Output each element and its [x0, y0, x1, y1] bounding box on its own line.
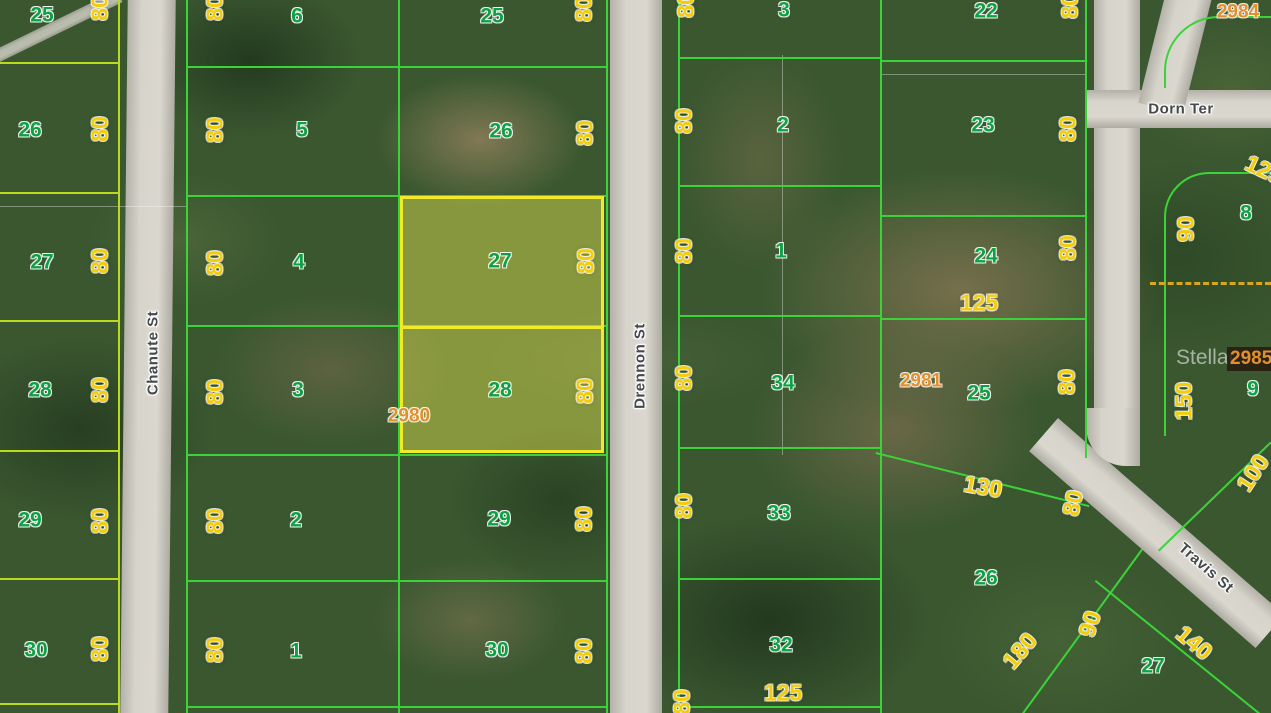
parcel-id-2985-badge: 2985 — [1227, 347, 1271, 371]
street-name-label: Travis St — [1176, 540, 1236, 595]
street-name-label: Dorn Ter — [1148, 102, 1213, 117]
street-name-label: Chanute St — [146, 311, 161, 395]
aerial-parcel-map[interactable]: 2526272829306543212526272829303213433322… — [0, 0, 1271, 713]
street-name-label: Drennon St — [633, 323, 648, 409]
street-name-layer: Chanute StDrennon StDorn TerTravis St — [0, 0, 1271, 713]
